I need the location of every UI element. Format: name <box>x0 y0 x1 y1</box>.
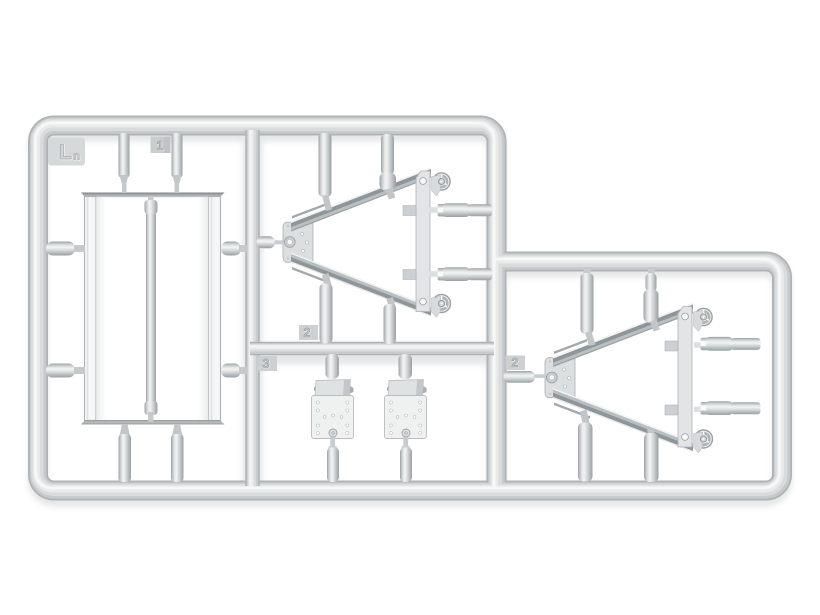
svg-text:3: 3 <box>263 357 270 371</box>
svg-text:2: 2 <box>304 326 311 340</box>
svg-text:1: 1 <box>157 139 164 153</box>
svg-text:n: n <box>73 151 80 163</box>
svg-text:2: 2 <box>512 356 519 370</box>
svg-text:L: L <box>59 141 72 164</box>
